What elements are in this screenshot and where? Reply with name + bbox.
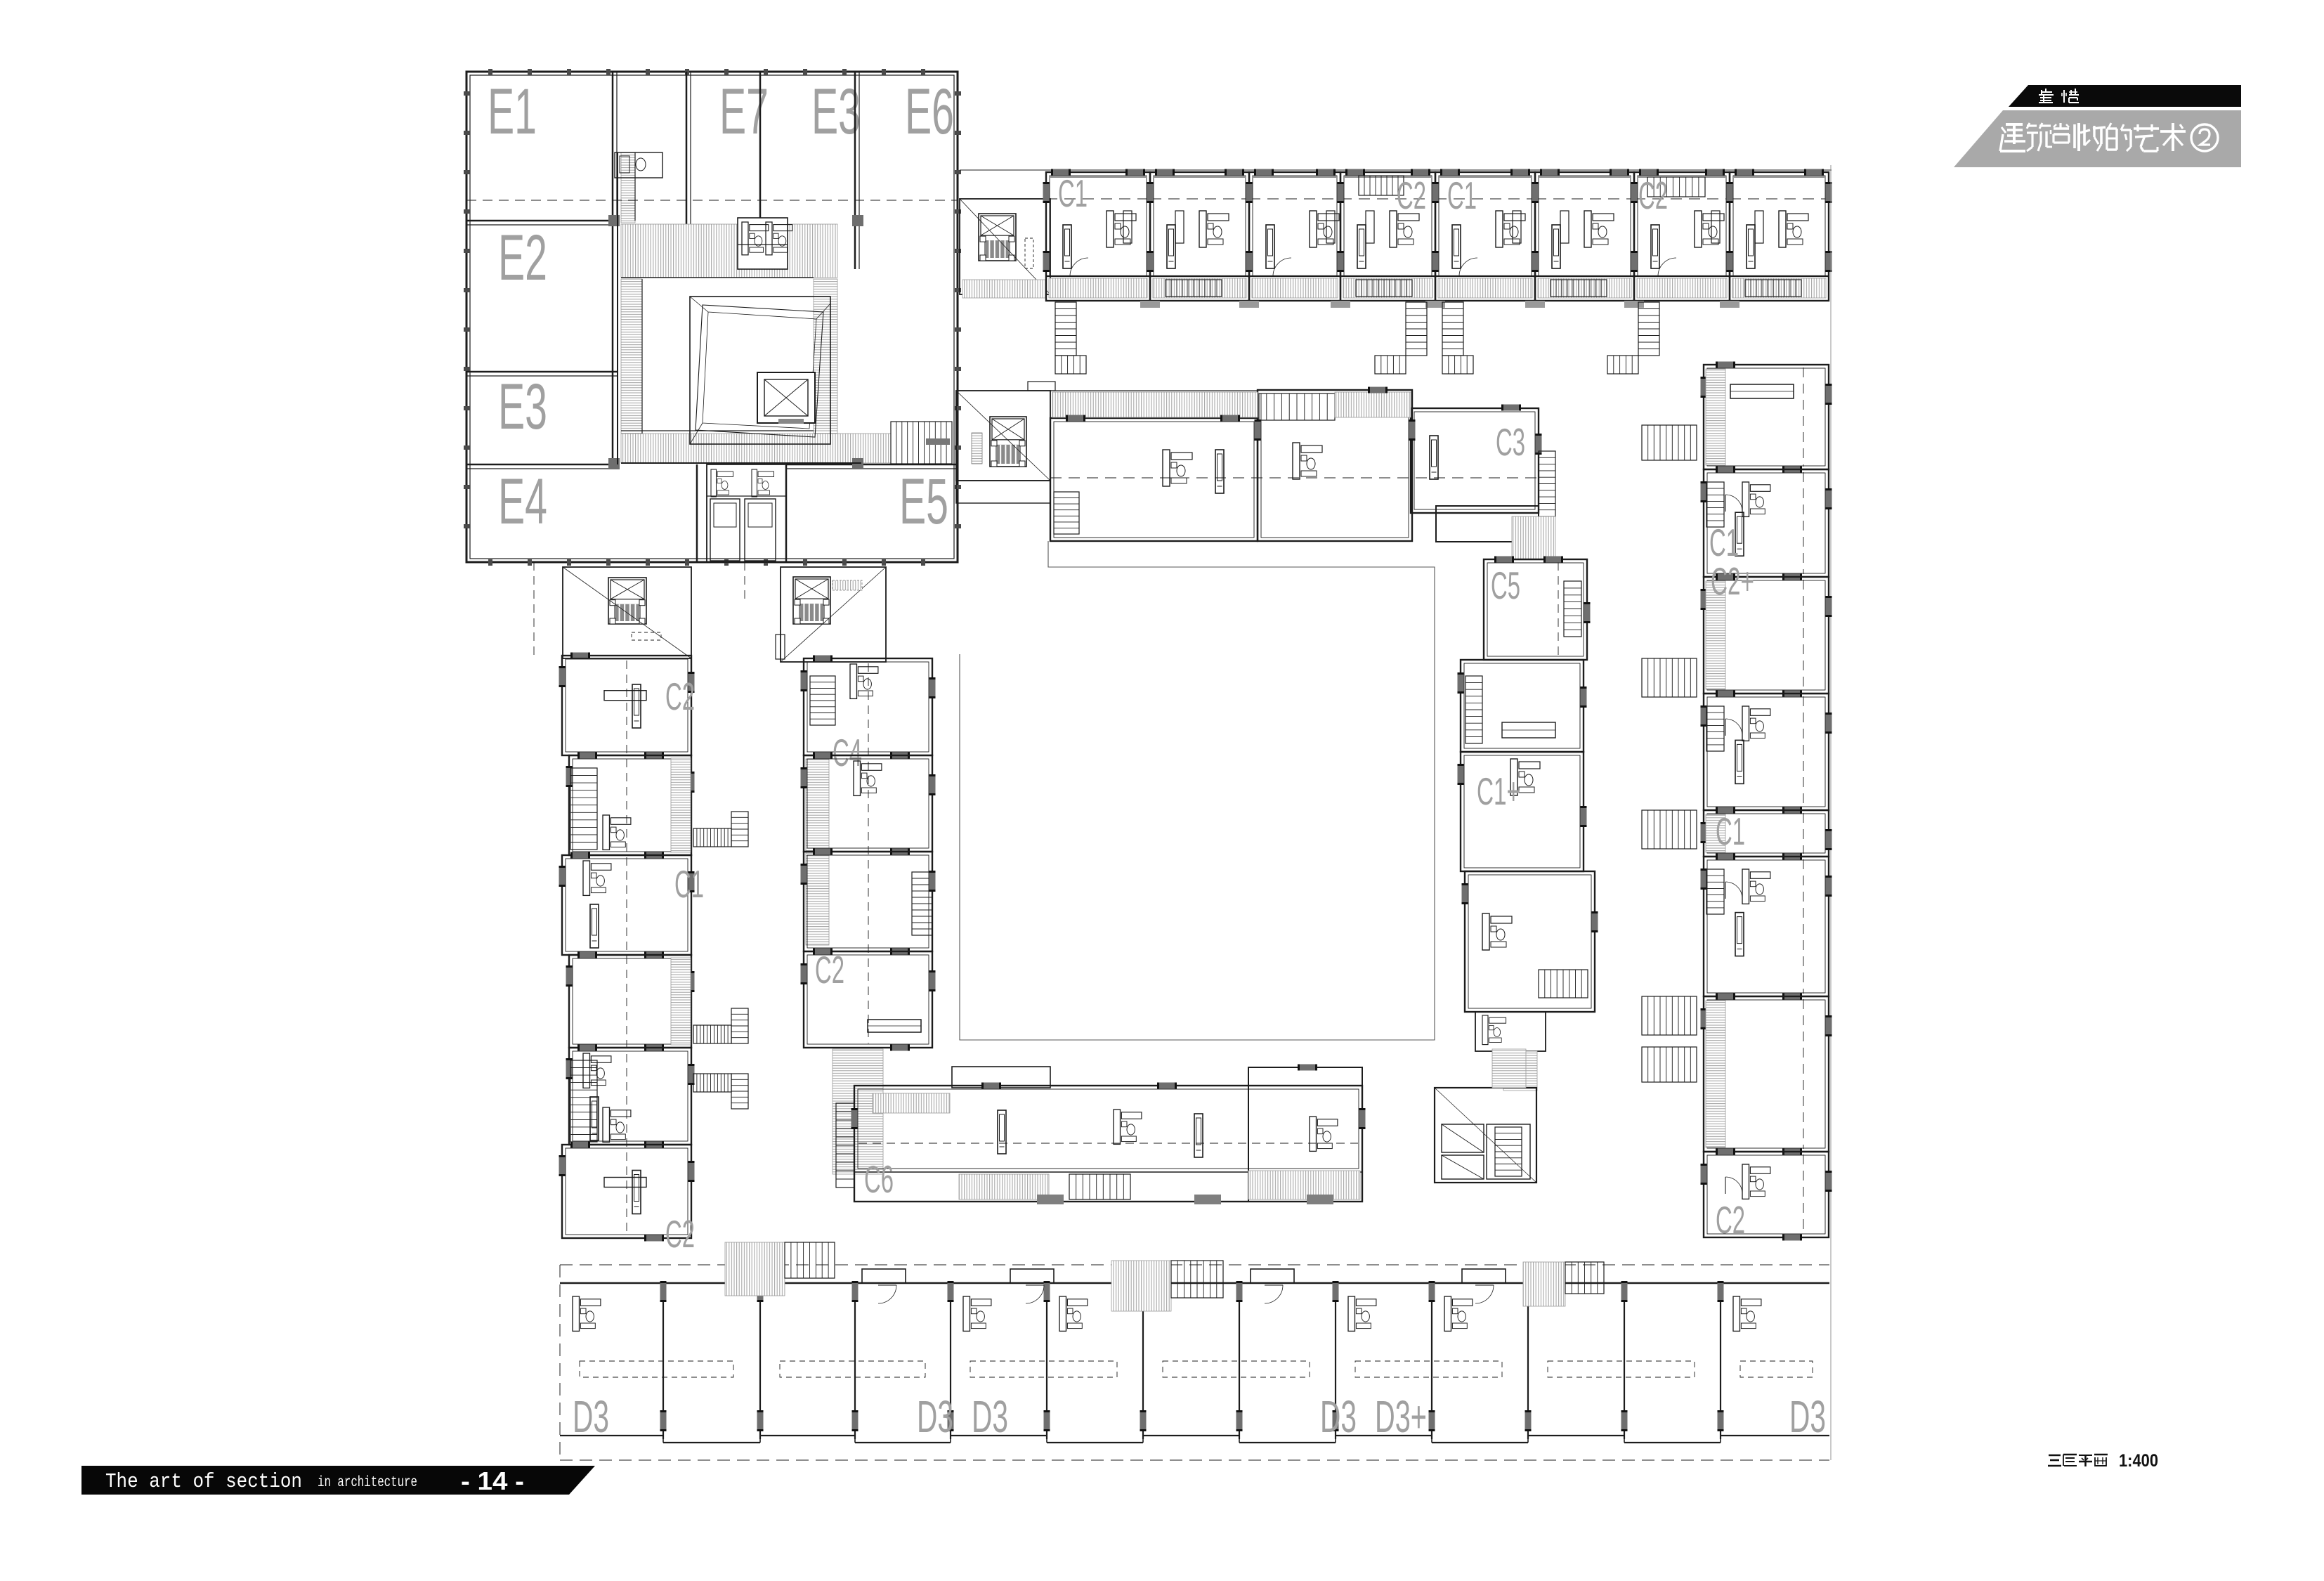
svg-text:C1: C1	[1447, 174, 1477, 217]
svg-text:C4: C4	[833, 731, 862, 774]
svg-text:D3+: D3+	[1375, 1391, 1427, 1442]
svg-text:E6: E6	[905, 76, 954, 148]
svg-text:D3: D3	[972, 1391, 1008, 1442]
svg-text:C2+: C2+	[1711, 559, 1754, 603]
svg-text:E3: E3	[498, 371, 547, 443]
svg-text:C1: C1	[1716, 809, 1745, 853]
svg-text:E1: E1	[488, 76, 537, 148]
svg-text:C3: C3	[1496, 420, 1525, 464]
svg-text:E2: E2	[498, 222, 547, 294]
svg-text:D3: D3	[573, 1391, 609, 1442]
svg-text:C2: C2	[665, 1212, 695, 1256]
svg-text:in architecture: in architecture	[318, 1475, 417, 1491]
svg-text:C1: C1	[1058, 171, 1088, 215]
svg-text:The art of section: The art of section	[105, 1470, 302, 1493]
svg-text:1:400: 1:400	[2119, 1451, 2158, 1471]
svg-text:C5: C5	[1491, 564, 1520, 607]
svg-text:E3: E3	[811, 76, 861, 148]
svg-text:C2: C2	[1716, 1198, 1745, 1242]
svg-text:E7: E7	[719, 76, 769, 148]
svg-text:C2: C2	[1638, 174, 1668, 217]
svg-text:C1+: C1+	[1477, 769, 1520, 813]
svg-text:D3: D3	[1789, 1391, 1826, 1442]
svg-text:- 14 -: - 14 -	[461, 1466, 524, 1495]
svg-text:D3: D3	[917, 1391, 953, 1442]
svg-text:C2: C2	[665, 675, 695, 718]
svg-text:C1: C1	[674, 862, 704, 906]
svg-text:D3: D3	[1320, 1391, 1357, 1442]
svg-text:E5: E5	[899, 466, 948, 538]
svg-text:C6: C6	[864, 1157, 894, 1201]
svg-text:C1: C1	[1709, 521, 1739, 564]
svg-text:E4: E4	[498, 466, 547, 538]
svg-text:C2: C2	[1397, 174, 1426, 217]
